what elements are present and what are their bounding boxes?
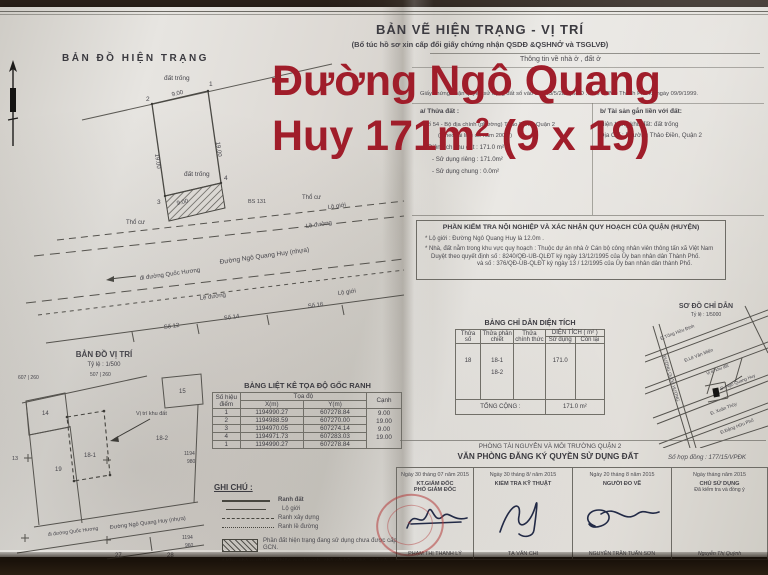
signer-col-2: Ngày 30 tháng 8/ năm 2015 KIỂM TRA KỸ TH… — [474, 468, 573, 559]
inspection-box: PHẦN KIỂM TRA NỘI NGHIỆP VÀ XÁC NHẬN QUY… — [416, 220, 726, 280]
cell: 1194990.27 — [240, 441, 303, 449]
signer-col-4: Ngày tháng năm 2015 CHỦ SỬ DỤNG Đã kiểm … — [672, 468, 767, 559]
coord-col-coord: Tọa độ — [240, 393, 367, 401]
area-table-title: BẢNG CHỈ DẪN DIỆN TÍCH — [455, 318, 605, 327]
area-col4: DIỆN TÍCH ( m² ) — [545, 330, 604, 337]
plan-label-dat-trong-top: đất trống — [164, 73, 190, 82]
plan-le-duong-bottom: Lề đường — [199, 292, 226, 302]
signer-role: KIỂM TRA KỸ THUẬT — [474, 481, 572, 487]
table-row: 4 1194971.73 607283.03 19.00 — [213, 433, 402, 441]
legend-line-lo-gioi — [226, 509, 266, 510]
inspection-line3: Duyệt theo quyết định số : 8240/QĐ-UB-QL… — [431, 254, 725, 260]
cell-edge: 9.00 — [367, 425, 402, 433]
plan-label-dat-trong-in: đất trống — [184, 169, 210, 178]
coord-col-edge: Cạnh — [367, 393, 402, 409]
location-map-drawing: BẢN ĐỒ VỊ TRÍ Tỷ lệ : 1/500 607 | 260 50 — [12, 335, 208, 560]
cell: 607278.84 — [304, 409, 367, 417]
signature-3 — [579, 500, 665, 540]
coord-col-point: Số hiệu điểm — [213, 393, 241, 409]
inspection-line4: và số : 376/QĐ-UB-QLĐT ký ngày 13 / 12/1… — [477, 261, 725, 267]
sodo-marker-label: Vị trí khu đất — [706, 363, 731, 376]
legend-line-ranh-xd — [222, 518, 274, 519]
area-col1: Thửa số — [456, 330, 481, 344]
overlay-line2-sup: 2 — [475, 112, 489, 142]
sodo-s2: Đ.Lê Văn Miến — [684, 347, 715, 363]
cell: 18-1 18-2 — [481, 344, 514, 400]
legend-item: Ranh đất — [222, 496, 407, 505]
area-col4a: Sử dụng — [545, 337, 575, 344]
total-value: 171.0 — [563, 404, 578, 410]
footer-rule — [400, 440, 766, 441]
cell: 607270.00 — [304, 417, 367, 425]
legend-label: Lộ giới — [282, 506, 300, 513]
plan-le-duong-top: Lề đường — [305, 220, 332, 230]
vitri-p14: 14 — [42, 411, 49, 417]
area-col2: Thửa phân chiết — [481, 330, 514, 344]
total-unit: m² — [580, 404, 587, 410]
coord-col-y: Y(m) — [304, 401, 367, 409]
signature-2 — [492, 496, 562, 538]
cell-edge: 9.00 — [367, 409, 402, 417]
cell-edge — [367, 441, 402, 449]
cell: 3 — [213, 425, 241, 433]
coord-col-x: X(m) — [240, 401, 303, 409]
office-line1: PHÒNG TÀI NGUYÊN VÀ MÔI TRƯỜNG QUẬN 2 — [420, 443, 680, 450]
plan-bs: BS 131 — [248, 199, 266, 205]
vitri-p181: 18-1 — [84, 453, 97, 459]
cell: 2 — [213, 417, 241, 425]
cell-sub1: 18-1 — [482, 358, 512, 364]
plan-dim-left: 19.00 — [153, 153, 161, 169]
plan-so16: Số 16 — [307, 302, 324, 310]
sodo-scale: Tỷ lệ : 1/5000 — [691, 311, 722, 318]
top-rule-2 — [0, 14, 768, 15]
doc-subtitle: (Bổ túc hồ sơ xin cấp đổi giấy chứng nhậ… — [250, 40, 710, 49]
sodo-s1: Đ.Tống Hữu Định — [660, 323, 696, 341]
plan-pt1: 1 — [209, 81, 213, 88]
vitri-scale: Tỷ lệ : 1/500 — [87, 361, 121, 368]
signer-date: Ngày tháng năm 2015 — [672, 472, 767, 478]
cell: 1194971.73 — [240, 433, 303, 441]
vitri-marker-label: Vị trí khu đất — [136, 411, 167, 417]
table-row: 3 1194970.05 607274.14 9.00 — [213, 425, 402, 433]
cell: 1194988.59 — [240, 417, 303, 425]
inspection-title: PHẦN KIỂM TRA NỘI NGHIỆP VÀ XÁC NHẬN QUY… — [417, 224, 725, 231]
overlay-line1: Đường Ngô Quang — [272, 58, 661, 104]
vitri-p13: 13 — [12, 456, 18, 462]
table-row: 1 1194990.27 607278.84 9.00 — [213, 409, 402, 417]
plan-lo-gioi-top: Lộ giới — [327, 202, 346, 210]
section-rule2 — [412, 215, 764, 216]
legend-label: Ranh lề đường — [278, 524, 318, 531]
top-rule-1 — [0, 11, 768, 12]
legend-title: GHI CHÚ : — [214, 483, 253, 492]
cell: 1 — [213, 409, 241, 417]
cell: 1194970.05 — [240, 425, 303, 433]
table-row: 18 18-1 18-2 171.0 — [456, 344, 605, 400]
plan-dim-right: 19.00 — [214, 141, 222, 157]
plan-pt2: 2 — [146, 96, 150, 103]
vitri-p15: 15 — [179, 389, 186, 395]
cell-sub2: 18-2 — [482, 370, 512, 376]
legend-label: Ranh đất — [278, 497, 304, 504]
sodo-title: SƠ ĐỒ CHỈ DẪN — [679, 300, 733, 310]
office-line2: VĂN PHÒNG ĐĂNG KÝ QUYỀN SỬ DỤNG ĐẤT — [408, 452, 688, 461]
area-table: Thửa số Thửa phân chiết Thửa chính thức … — [455, 329, 605, 415]
cell: 607274.14 — [304, 425, 367, 433]
legend-line-ranh-le — [222, 527, 274, 528]
vitri-title: BẢN ĐỒ VỊ TRÍ — [76, 349, 133, 359]
vitri-r1b: 980 — [187, 459, 196, 465]
plan-road-name: Đường Ngô Quang Huy (nhựa) — [219, 246, 309, 265]
cell: 4 — [213, 433, 241, 441]
plan-to-road: đi đường Quốc Hương — [139, 268, 200, 282]
signer-date: Ngày 20 tháng 8 năm 2015 — [573, 472, 671, 478]
area-col4b: Còn lại — [575, 337, 604, 344]
signer-role2: PHÓ GIÁM ĐỐC — [397, 487, 473, 493]
signature-table: Ngày 30 tháng 07 năm 2015 KT.GIÁM ĐỐC PH… — [396, 467, 768, 560]
vitri-grid2: 507 | 260 — [90, 372, 111, 378]
cell-edge: 19.00 — [367, 417, 402, 425]
inspection-line1: * Lộ giới : Đường Ngô Quang Huy là 12.0m… — [425, 236, 725, 242]
cell: 1 — [213, 441, 241, 449]
header-rule — [430, 53, 760, 54]
coord-table: Số hiệu điểm Tọa độ Cạnh X(m) Y(m) 1 119… — [212, 392, 402, 449]
cell — [514, 344, 546, 400]
index-map-drawing: SƠ ĐỒ CHỈ DẪN Tỷ lệ : 1/5000 Đ.Tống Hữu … — [645, 298, 768, 448]
signer-date: Ngày 30 tháng 07 năm 2015 — [397, 472, 473, 478]
signer-role: NGƯỜI ĐO VẼ — [573, 481, 671, 487]
cell: 171.0 — [545, 344, 575, 400]
table-row: 2 1194988.59 607270.00 19.00 — [213, 417, 402, 425]
vitri-road: Đường Ngô Quang Huy (nhựa) — [110, 516, 187, 531]
cell-total-label: TỔNG CỘNG : — [456, 400, 546, 415]
cell: 18 — [456, 344, 481, 400]
a-common: - Sử dụng chung : 0.0m² — [432, 168, 499, 175]
plan-so14: Số 14 — [223, 314, 240, 322]
cell-total-value: 171.0 m² — [545, 400, 604, 415]
plan-pt3: 3 — [157, 199, 161, 206]
overlay-line2-pre: Huy 171m — [272, 112, 475, 160]
vitri-r2b: 960 — [185, 543, 194, 549]
doc-title: BẢN VẼ HIỆN TRẠNG - VỊ TRÍ — [280, 22, 680, 37]
vitri-r2a: 1194 — [182, 535, 193, 541]
vitri-p182: 18-2 — [156, 436, 169, 442]
cell-edge: 19.00 — [367, 433, 402, 441]
contract-number: Số hợp đồng : 177/15/VPĐK — [668, 454, 746, 461]
legend-hatch-swatch — [222, 539, 258, 552]
vitri-grid1: 607 | 260 — [18, 375, 39, 381]
area-col3: Thửa chính thức — [514, 330, 546, 344]
sodo-s6: ĐƯỜNG QUỐC HƯƠNG — [662, 355, 681, 402]
legend-label: Ranh xây dựng — [278, 515, 319, 522]
overlay-line2-post: (9 x 19) — [490, 112, 650, 160]
cell: 1194990.27 — [240, 409, 303, 417]
vitri-p19: 19 — [55, 467, 62, 473]
photo-of-cadastral-document: BẢN VẼ HIỆN TRẠNG - VỊ TRÍ (Bổ túc hồ sơ… — [0, 0, 768, 575]
signer-role2: Đã kiểm tra và đồng ý — [672, 487, 767, 493]
coord-table-title: BẢNG LIỆT KÊ TỌA ĐỘ GỐC RANH — [210, 381, 405, 390]
plan-tho-cu-right: Thổ cư — [302, 194, 321, 201]
plan-pt4: 4 — [224, 175, 228, 182]
cell: 607278.84 — [304, 441, 367, 449]
table-row: 1 1194990.27 607278.84 — [213, 441, 402, 449]
plan-tho-cu-left: Thổ cư — [126, 219, 145, 226]
cell — [575, 344, 604, 400]
overlay-text: Đường Ngô Quang Huy 171m2 (9 x 19) — [272, 58, 661, 159]
total-label: TỔNG CỘNG : — [480, 404, 520, 410]
plan-so12: Số 12 — [163, 323, 180, 331]
overlay-line2: Huy 171m2 (9 x 19) — [272, 104, 661, 159]
plan-lo-gioi-bottom: Lộ giới — [337, 288, 356, 296]
signer-col-3: Ngày 20 tháng 8 năm 2015 NGƯỜI ĐO VẼ NGU… — [573, 468, 672, 559]
inspection-line2: * Nhà, đất nằm trong khu vực quy hoạch :… — [425, 246, 725, 252]
photo-background-bottom — [0, 552, 768, 575]
vitri-r1a: 1194 — [184, 451, 195, 457]
signer-date: Ngày 30 tháng 8/ năm 2015 — [474, 472, 572, 478]
legend-line-ranh-dat — [222, 500, 270, 502]
table-row-total: TỔNG CỘNG : 171.0 m² — [456, 400, 605, 415]
cell: 607283.03 — [304, 433, 367, 441]
vitri-to-road: đi đường Quốc Hương — [48, 526, 99, 538]
